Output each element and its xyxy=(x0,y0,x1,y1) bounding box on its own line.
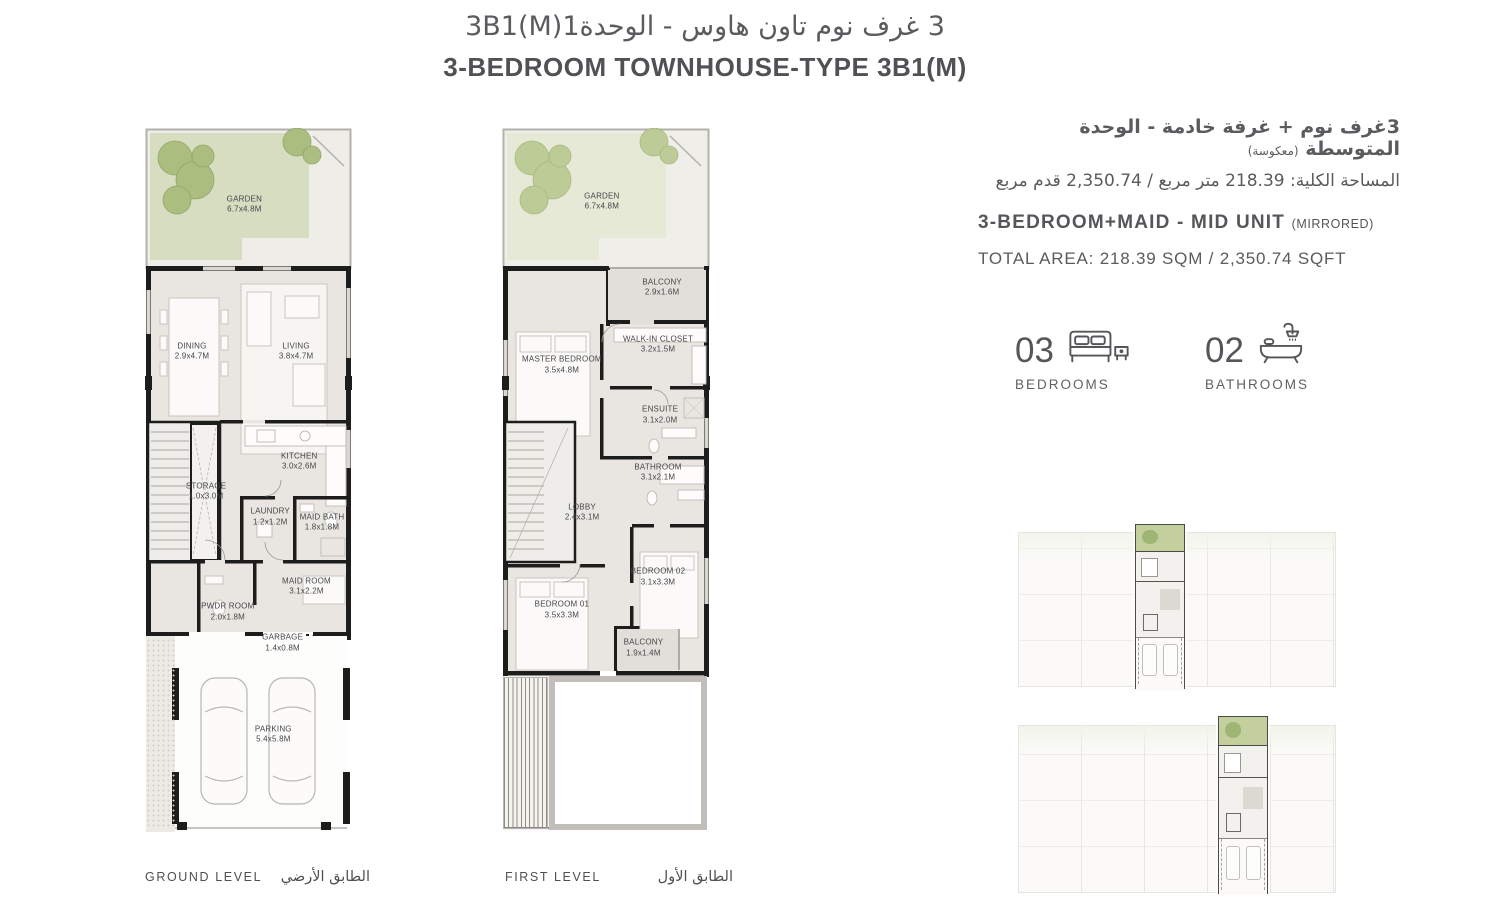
key-plan-garden xyxy=(1219,717,1267,746)
key-plan-garden xyxy=(1136,525,1184,552)
room-label-garden: GARDEN6.7x4.8M xyxy=(227,194,262,215)
room-label-storage: STORAGE1.0x3.0M xyxy=(186,482,226,503)
driveway-texture xyxy=(146,638,175,829)
first-plan-room-labels: GARDEN6.7x4.8MBALCONY2.9x1.6MWALK-IN CLO… xyxy=(502,128,710,832)
room-label-lobby: LOBBY2.4x3.1M xyxy=(565,503,600,524)
ground-level-caption: GROUND LEVEL الطابق الأرضي xyxy=(145,869,370,885)
key-plan-neighbor-units xyxy=(1018,725,1336,892)
room-label-maid-bath: MAID BATH1.8x1.8M xyxy=(300,513,345,534)
page-header: 3 غرف نوم تاون هاوس - الوحدة3B1(M)1 3-BE… xyxy=(280,10,1130,83)
bathtub-icon xyxy=(1257,320,1305,368)
key-plan-room-block xyxy=(1226,813,1241,831)
key-plan-room-block xyxy=(1243,787,1263,809)
unit-type-arabic-note: (معكوسة) xyxy=(1248,144,1299,158)
key-plan-highlighted-unit xyxy=(1135,524,1185,689)
bed-icon xyxy=(1067,326,1131,368)
key-plan-car xyxy=(1226,846,1241,881)
room-label-kitchen: KITCHEN3.0x2.6M xyxy=(281,451,318,472)
total-area-arabic: المساحة الكلية: 218.39 متر مربع / 2,350.… xyxy=(978,171,1400,191)
room-label-laundry: LAUNDRY1.2x1.2M xyxy=(250,507,290,528)
room-label-maid-room: MAID ROOM3.1x2.2M xyxy=(282,577,331,598)
room-label-dining: DINING2.9x4.7M xyxy=(175,341,210,362)
key-plan-unit-body xyxy=(1219,746,1267,839)
key-plan-highlighted-unit xyxy=(1218,716,1268,894)
room-label-garden: GARDEN6.7x4.8M xyxy=(584,192,619,213)
room-label-pwdr-room: PWDR ROOM2.0x1.8M xyxy=(201,602,254,623)
room-label-garbage: GARBAGE1.4x0.8M xyxy=(262,633,303,654)
unit-type-english: 3-BEDROOM+MAID - MID UNIT (MIRRORED) xyxy=(978,212,1400,234)
unit-type-english-note: (MIRRORED) xyxy=(1292,217,1374,231)
first-level-label-en: FIRST LEVEL xyxy=(505,870,601,884)
room-label-master-bedroom: MASTER BEDROOM3.5x4.8M xyxy=(522,355,602,376)
key-plan-parking xyxy=(1219,839,1267,895)
unit-type-arabic: 3غرف نوم + غرفة خادمة - الوحدة المتوسطة … xyxy=(978,116,1400,160)
key-plan-parking xyxy=(1136,638,1184,690)
key-plan-room-block xyxy=(1160,589,1180,609)
ground-plan-room-labels: GARDEN6.7x4.8MDINING2.9x4.7MLIVING3.8x4.… xyxy=(145,128,352,832)
unit-type-english-text: 3-BEDROOM+MAID - MID UNIT xyxy=(978,212,1285,233)
room-label-bathroom: BATHROOM3.1x2.1M xyxy=(634,463,681,484)
room-label-parking: PARKING5.4x5.8M xyxy=(255,724,292,745)
unit-info-block: 3غرف نوم + غرفة خادمة - الوحدة المتوسطة … xyxy=(978,116,1400,269)
ground-level-label-ar: الطابق الأرضي xyxy=(281,869,370,885)
room-label-bedroom-01: BEDROOM 013.5x3.3M xyxy=(535,600,589,621)
first-level-label-ar: الطابق الأول xyxy=(658,869,733,885)
bedrooms-stat: 03 BEDROOMS xyxy=(1015,322,1131,392)
key-plan-car xyxy=(1246,846,1261,881)
key-plan-unit-body xyxy=(1136,552,1184,638)
bedrooms-count: 03 xyxy=(1015,333,1054,368)
bathrooms-stat: 02 BATHROOMS xyxy=(1205,322,1309,392)
room-label-balcony: BALCONY1.9x1.4M xyxy=(624,638,664,659)
total-area-english: TOTAL AREA: 218.39 SQM / 2,350.74 SQFT xyxy=(978,249,1400,269)
key-plan-room-block xyxy=(1141,558,1158,577)
room-label-living: LIVING3.8x4.7M xyxy=(279,341,314,362)
key-plan-car xyxy=(1142,644,1157,676)
bathrooms-label: BATHROOMS xyxy=(1205,377,1309,392)
pergola-louvers xyxy=(503,677,548,829)
key-plan-car xyxy=(1163,644,1178,676)
room-label-walk-in-closet: WALK-IN CLOSET3.2x1.5M xyxy=(623,334,693,355)
room-label-ensuite: ENSUITE3.1x2.0M xyxy=(642,405,678,426)
ground-floor-plan: GARDEN6.7x4.8MDINING2.9x4.7MLIVING3.8x4.… xyxy=(145,128,352,832)
bedrooms-label: BEDROOMS xyxy=(1015,377,1131,392)
ground-level-label-en: GROUND LEVEL xyxy=(145,870,262,884)
key-plan-ground-level xyxy=(1018,524,1336,692)
unit-type-arabic-text: 3غرف نوم + غرفة خادمة - الوحدة المتوسطة xyxy=(1079,116,1400,160)
page-title-arabic: 3 غرف نوم تاون هاوس - الوحدة3B1(M)1 xyxy=(280,10,1130,44)
page-title-english: 3-BEDROOM TOWNHOUSE-TYPE 3B1(M) xyxy=(280,52,1130,83)
floor-plan-sheet: 3 غرف نوم تاون هاوس - الوحدة3B1(M)1 3-BE… xyxy=(0,0,1500,900)
key-plan-room-block xyxy=(1143,614,1158,631)
first-floor-plan: GARDEN6.7x4.8MBALCONY2.9x1.6MWALK-IN CLO… xyxy=(502,128,710,832)
bathrooms-count: 02 xyxy=(1205,333,1244,368)
first-level-caption: FIRST LEVEL الطابق الأول xyxy=(505,869,733,885)
key-plan-room-block xyxy=(1224,753,1241,773)
room-label-balcony: BALCONY2.9x1.6M xyxy=(642,277,682,298)
key-plan-first-level xyxy=(1018,716,1336,898)
room-label-bedroom-02: BEDROOM 023.1x3.3M xyxy=(631,567,685,588)
